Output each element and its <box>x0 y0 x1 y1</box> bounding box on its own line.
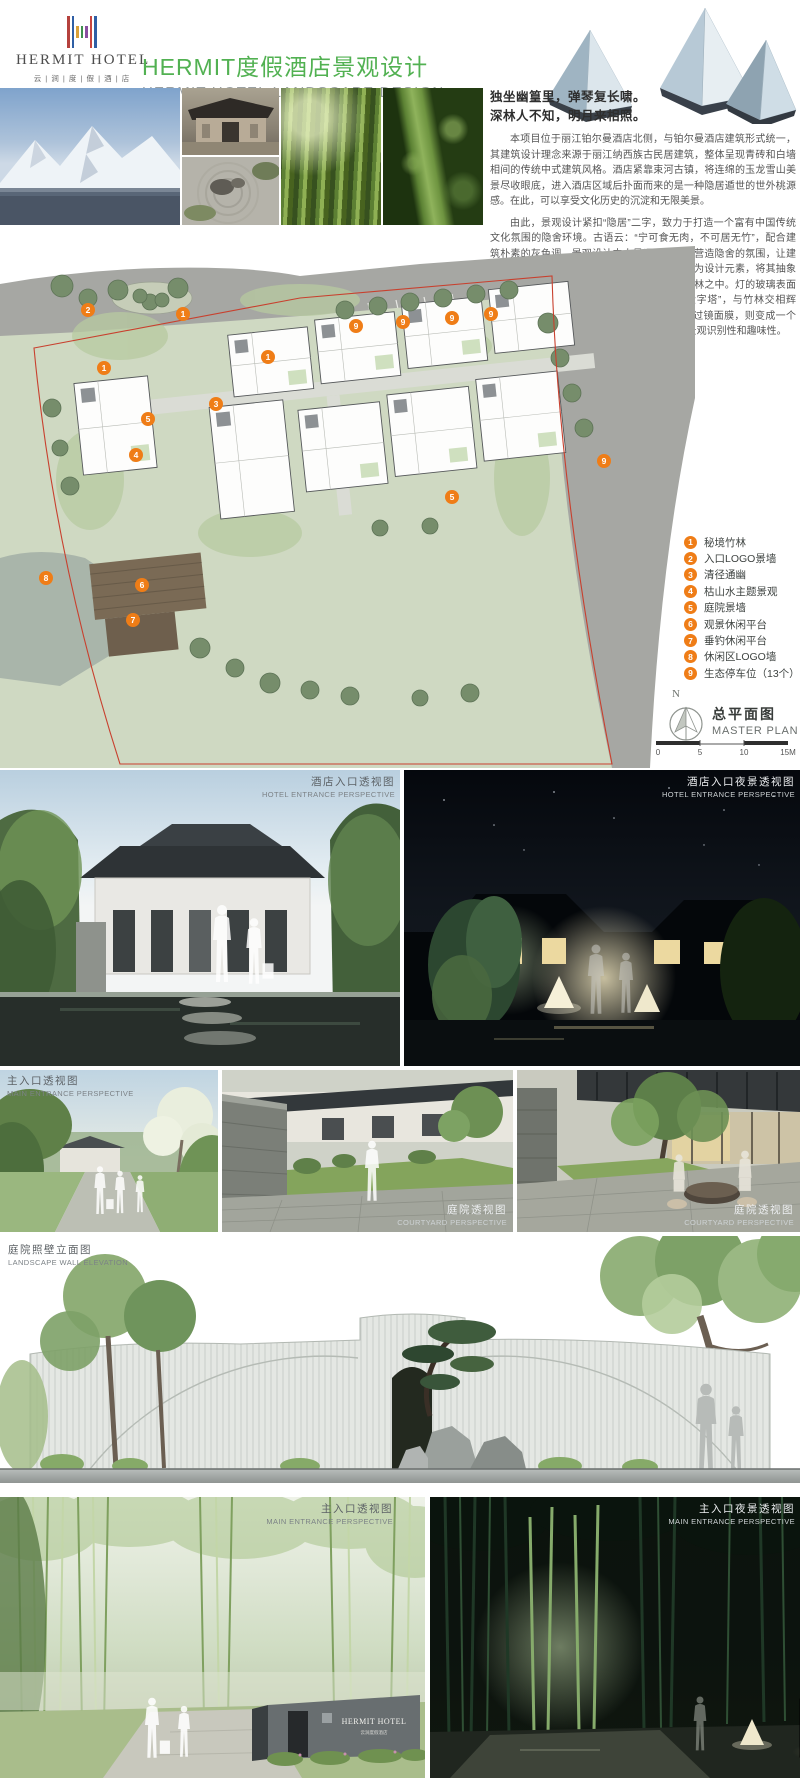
legend-badge: 3 <box>684 568 697 581</box>
legend-item: 4枯山水主题景观 <box>684 583 796 599</box>
plan-marker: 1 <box>266 352 271 362</box>
master-plan-drawing: 2 1 1 1 3 5 4 5 9 9 9 9 9 8 6 7 <box>0 228 695 768</box>
plan-title: 总平面图 MASTER PLAN <box>712 704 798 737</box>
render-label: 庭院透视图 COURTYARD PERSPECTIVE <box>684 1204 794 1228</box>
design-board: HERMIT HOTEL 云 | 涧 | 度 | 假 | 酒 | 店 HERMI… <box>0 0 800 1778</box>
snow-mountain-graphic <box>0 88 180 225</box>
photo-stone-garden <box>182 157 279 225</box>
legend-badge: 7 <box>684 634 697 647</box>
render-label-cn: 庭院照壁立面图 <box>8 1244 128 1257</box>
legend-badge: 5 <box>684 601 697 614</box>
photo-bamboo-dark <box>383 88 483 225</box>
plan-marker: 1 <box>181 309 186 319</box>
render-label-en: LANDSCAPE WALL ELEVATION <box>8 1258 128 1267</box>
render-label-cn: 主入口夜景透视图 <box>668 1503 795 1516</box>
render-label: 庭院照壁立面图 LANDSCAPE WALL ELEVATION <box>8 1244 128 1268</box>
scale-tick: 10 <box>740 748 749 757</box>
hotel-logo: HERMIT HOTEL 云 | 涧 | 度 | 假 | 酒 | 店 <box>16 16 148 84</box>
legend-badge: 9 <box>684 667 697 680</box>
render-label-en: HOTEL ENTRANCE PERSPECTIVE <box>662 790 795 799</box>
legend-label: 垂钓休闲平台 <box>704 633 767 648</box>
plan-marker: 5 <box>146 414 151 424</box>
legend-badge: 2 <box>684 552 697 565</box>
render-label-cn: 庭院透视图 <box>397 1204 507 1217</box>
legend-item: 8休闲区LOGO墙 <box>684 649 796 665</box>
legend-label: 观景休闲平台 <box>704 617 767 632</box>
legend-label: 生态停车位（13个） <box>704 666 800 681</box>
entry-day-graphic: HERMIT HOTEL 云涧度假酒店 <box>0 1497 425 1778</box>
legend-badge: 1 <box>684 536 697 549</box>
elevation-graphic <box>0 1236 800 1494</box>
render-label-en: COURTYARD PERSPECTIVE <box>684 1218 794 1227</box>
render-label: 主入口透视图 MAIN ENTRANCE PERSPECTIVE <box>266 1503 393 1527</box>
photo-courtyard-gate <box>182 88 279 155</box>
legend-item: 3清径通幽 <box>684 567 796 583</box>
render-hotel-entrance-night: 酒店入口夜景透视图 HOTEL ENTRANCE PERSPECTIVE <box>404 770 800 1066</box>
board-title-cn: HERMIT度假酒店景观设计 <box>142 48 444 82</box>
gate-graphic <box>182 88 279 155</box>
sign-sub-text: 云涧度假酒店 <box>361 1729 388 1736</box>
scale-bar-graphic <box>656 736 798 748</box>
render-main-entrance-day-small: 主入口透视图 MAIN ENTRANCE PERSPECTIVE <box>0 1070 218 1232</box>
render-label-en: HOTEL ENTRANCE PERSPECTIVE <box>262 790 395 799</box>
logo-brand-text: HERMIT HOTEL <box>16 52 148 69</box>
legend-item: 9生态停车位（13个） <box>684 665 796 681</box>
legend-label: 清径通幽 <box>704 567 746 582</box>
render-label-en: MAIN ENTRANCE PERSPECTIVE <box>7 1089 134 1098</box>
scale-tick: 15M <box>780 748 796 757</box>
render-entry-night: HERMIT HOTEL 云涧度假酒店 主入口夜景透视图 MAIN ENTRAN… <box>430 1497 800 1778</box>
plan-marker: 3 <box>214 399 219 409</box>
render-label: 酒店入口透视图 HOTEL ENTRANCE PERSPECTIVE <box>262 776 395 800</box>
plan-marker: 9 <box>354 321 359 331</box>
render-label: 主入口夜景透视图 MAIN ENTRANCE PERSPECTIVE <box>668 1503 795 1527</box>
logo-sub-text: 云 | 涧 | 度 | 假 | 酒 | 店 <box>16 73 148 84</box>
sign-text: HERMIT HOTEL <box>342 1717 407 1726</box>
plan-legend: 1秘境竹林 2入口LOGO景墙 3清径通幽 4枯山水主题景观 5庭院景墙 6观景… <box>684 534 796 682</box>
photo-bamboo-light <box>281 88 381 225</box>
legend-item: 5庭院景墙 <box>684 600 796 616</box>
legend-badge: 6 <box>684 618 697 631</box>
scale-tick: 5 <box>698 748 702 757</box>
render-courtyard-2: 庭院透视图 COURTYARD PERSPECTIVE <box>517 1070 800 1232</box>
render-hotel-entrance-day: 酒店入口透视图 HOTEL ENTRANCE PERSPECTIVE <box>0 770 400 1066</box>
render-label-cn: 庭院透视图 <box>684 1204 794 1217</box>
plan-marker: 9 <box>401 317 406 327</box>
hotel-entrance-day-graphic <box>0 770 400 1066</box>
scale-tick: 0 <box>656 748 660 757</box>
render-label-cn: 主入口透视图 <box>266 1503 393 1516</box>
scale-bar: 0 5 10 15M <box>656 736 798 760</box>
intro-paragraph-1: 本项目位于丽江铂尔曼酒店北侧，与铂尔曼酒店建筑形式统一，其建筑设计理念来源于丽江… <box>490 132 796 210</box>
render-courtyard-1: 庭院透视图 COURTYARD PERSPECTIVE <box>222 1070 513 1232</box>
hotel-entrance-night-graphic <box>404 770 800 1066</box>
render-label-cn: 主入口透视图 <box>7 1075 134 1088</box>
plan-marker: 5 <box>450 492 455 502</box>
photo-snow-mountain <box>0 88 180 225</box>
legend-label: 入口LOGO景墙 <box>704 551 776 566</box>
render-label-cn: 酒店入口夜景透视图 <box>662 776 795 789</box>
render-label-en: MAIN ENTRANCE PERSPECTIVE <box>668 1517 795 1526</box>
render-label: 主入口透视图 MAIN ENTRANCE PERSPECTIVE <box>7 1075 134 1099</box>
plan-marker: 1 <box>102 363 107 373</box>
render-label: 庭院透视图 COURTYARD PERSPECTIVE <box>397 1204 507 1228</box>
poem-line-1: 独坐幽篁里，弹琴复长啸。 <box>490 88 796 107</box>
poem-line-2: 深林人不知，明月来相照。 <box>490 107 796 126</box>
render-label-en: COURTYARD PERSPECTIVE <box>397 1218 507 1227</box>
render-label: 酒店入口夜景透视图 HOTEL ENTRANCE PERSPECTIVE <box>662 776 795 800</box>
legend-item: 1秘境竹林 <box>684 534 796 550</box>
plan-marker: 7 <box>131 615 136 625</box>
legend-label: 休闲区LOGO墙 <box>704 649 776 664</box>
plan-marker: 9 <box>450 313 455 323</box>
legend-item: 7垂钓休闲平台 <box>684 632 796 648</box>
plan-marker: 8 <box>44 573 49 583</box>
north-label: N <box>672 688 680 700</box>
landscape-wall-elevation: 庭院照壁立面图 LANDSCAPE WALL ELEVATION <box>0 1236 800 1494</box>
plan-marker: 9 <box>602 456 607 466</box>
plan-marker: 4 <box>134 450 139 460</box>
render-label-en: MAIN ENTRANCE PERSPECTIVE <box>266 1517 393 1526</box>
render-label-cn: 酒店入口透视图 <box>262 776 395 789</box>
legend-item: 2入口LOGO景墙 <box>684 550 796 566</box>
stone-garden-graphic <box>182 157 279 225</box>
legend-item: 6观景休闲平台 <box>684 616 796 632</box>
legend-label: 枯山水主题景观 <box>704 584 778 599</box>
legend-badge: 4 <box>684 585 697 598</box>
plan-title-cn: 总平面图 <box>712 704 798 724</box>
logo-h-icon <box>67 16 97 48</box>
legend-label: 庭院景墙 <box>704 600 746 615</box>
legend-label: 秘境竹林 <box>704 535 746 550</box>
plan-marker: 2 <box>86 305 91 315</box>
plan-marker: 9 <box>489 309 494 319</box>
plan-marker: 6 <box>140 580 145 590</box>
render-entry-day: HERMIT HOTEL 云涧度假酒店 主入口透视图 MAIN ENTRANCE… <box>0 1497 425 1778</box>
legend-badge: 8 <box>684 650 697 663</box>
entry-night-graphic: HERMIT HOTEL 云涧度假酒店 <box>430 1497 800 1778</box>
